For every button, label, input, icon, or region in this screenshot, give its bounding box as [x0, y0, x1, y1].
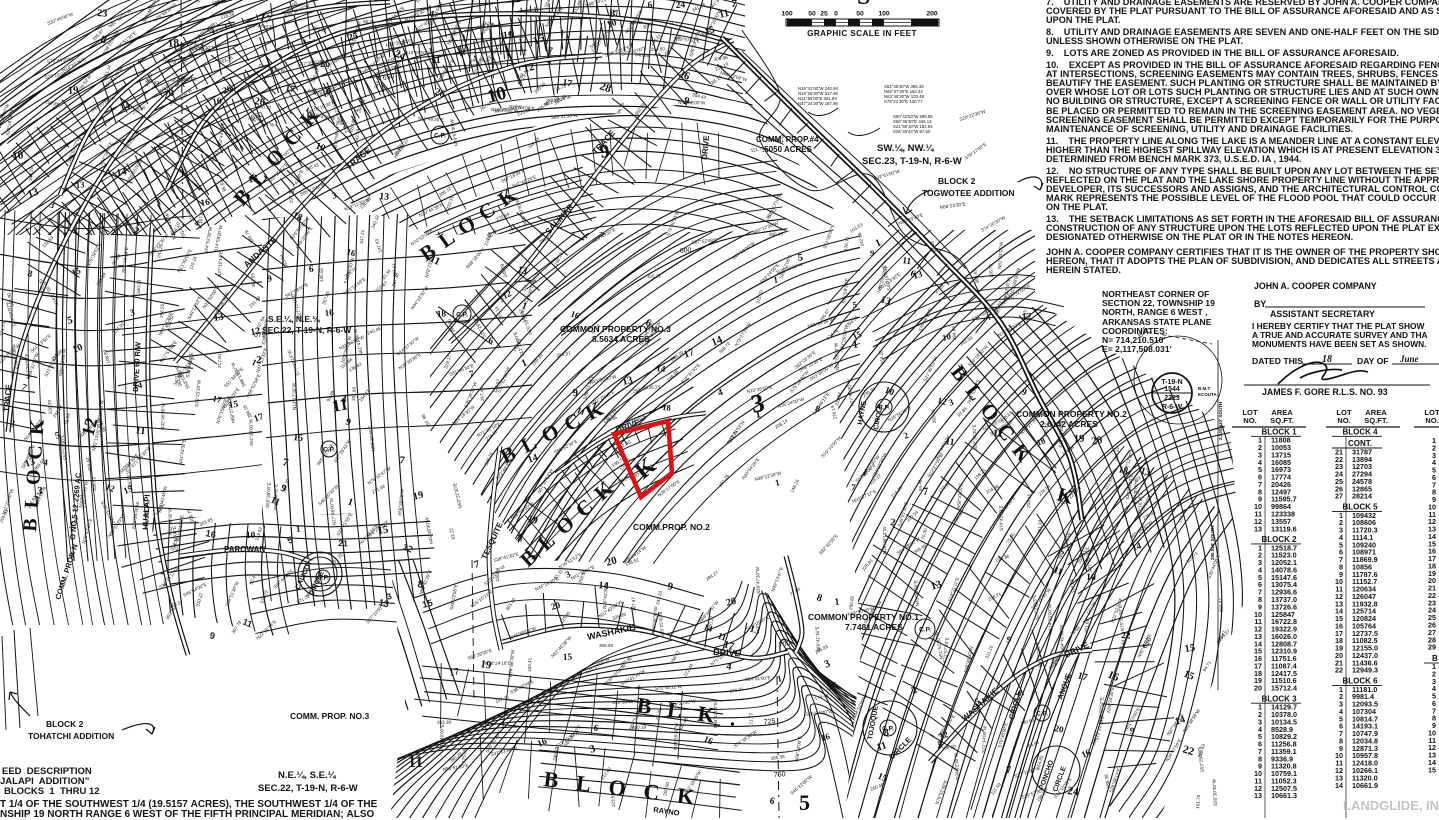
- svg-text:126.75: 126.75: [988, 263, 994, 278]
- svg-text:S.E.¼, N.E.¼: S.E.¼, N.E.¼: [268, 314, 320, 324]
- svg-text:PAROWAN: PAROWAN: [224, 545, 265, 554]
- svg-text:COMM. PROP.#4: COMM. PROP.#4: [756, 135, 819, 144]
- svg-text:17: 17: [561, 77, 573, 90]
- svg-text:COMM.PROP. NO.2: COMM.PROP. NO.2: [633, 522, 710, 532]
- svg-text:340.30: 340.30: [136, 279, 142, 294]
- svg-text:23: 23: [97, 8, 108, 20]
- svg-text:383.87: 383.87: [1218, 597, 1224, 612]
- svg-text:C.P.: C.P.: [1036, 711, 1048, 718]
- svg-text:12949.3: 12949.3: [1352, 666, 1378, 675]
- svg-text:C.P.: C.P.: [323, 447, 335, 454]
- svg-text:SQ.FT.: SQ.FT.: [1364, 416, 1388, 425]
- svg-text:C.P.: C.P.: [456, 312, 468, 319]
- svg-text:13: 13: [75, 179, 85, 190]
- svg-text:MONUMENTS HAVE BEEN SET AS: MONUMENTS HAVE BEEN SET AS SHOWN.: [1252, 339, 1427, 349]
- svg-text:254.50: 254.50: [651, 46, 666, 52]
- svg-text:725: 725: [764, 718, 776, 726]
- svg-text:50: 50: [856, 11, 864, 18]
- svg-text:208.92: 208.92: [91, 476, 97, 491]
- svg-text:8.5634 ACRES: 8.5634 ACRES: [592, 334, 650, 344]
- svg-text:BY: BY: [1254, 299, 1266, 309]
- svg-text:GRAPHIC SCALE IN FEET: GRAPHIC SCALE IN FEET: [807, 29, 917, 38]
- svg-text:SW.¼, NW.¼: SW.¼, NW.¼: [877, 143, 935, 154]
- svg-text:S41°49'00"E: S41°49'00"E: [439, 724, 445, 750]
- svg-text:13: 13: [1254, 791, 1262, 800]
- svg-text:June: June: [1399, 354, 1419, 364]
- svg-text:9: 9: [870, 248, 874, 258]
- svg-text:6: 6: [308, 264, 314, 275]
- svg-text:26: 26: [319, 58, 330, 70]
- svg-text:S39°47'30"W: S39°47'30"W: [755, 566, 761, 594]
- svg-text:NO.: NO.: [1337, 416, 1351, 425]
- svg-text:N32°40'00"W: N32°40'00"W: [160, 402, 166, 430]
- svg-text:284.22: 284.22: [1114, 446, 1120, 461]
- svg-text:TOGWOTEE ADDITION: TOGWOTEE ADDITION: [922, 188, 1015, 198]
- svg-text:12: 12: [1021, 311, 1032, 323]
- svg-text:ASSISTANT SECRETARY: ASSISTANT SECRETARY: [1270, 309, 1375, 319]
- svg-text:284.63: 284.63: [951, 325, 957, 340]
- svg-text:20: 20: [1254, 684, 1262, 693]
- svg-text:10: 10: [1086, 572, 1096, 583]
- svg-text:19: 19: [1074, 434, 1085, 445]
- svg-text:29: 29: [1428, 643, 1436, 652]
- svg-text:50: 50: [808, 11, 816, 18]
- svg-text:399.16: 399.16: [769, 231, 784, 237]
- svg-text:9: 9: [572, 388, 578, 399]
- svg-text:TOHATCHI ADDITION: TOHATCHI ADDITION: [28, 731, 114, 741]
- svg-text:C.P.: C.P.: [919, 627, 931, 634]
- svg-text:E= 2,117,508.031': E= 2,117,508.031': [1102, 344, 1172, 354]
- svg-text:10: 10: [246, 531, 256, 541]
- svg-text:9: 9: [1130, 727, 1136, 737]
- svg-text:B.M.T: B.M.T: [1198, 386, 1210, 391]
- svg-text:156.24: 156.24: [495, 567, 500, 582]
- svg-text:S26°49'44"W 87.60: S26°49'44"W 87.60: [893, 129, 931, 134]
- svg-text:135.55: 135.55: [319, 267, 324, 282]
- svg-text:2223: 2223: [1164, 395, 1180, 402]
- svg-text:C.P.: C.P.: [878, 405, 890, 412]
- svg-text:204.15: 204.15: [1026, 493, 1032, 508]
- svg-text:BLOCK 2: BLOCK 2: [46, 719, 84, 729]
- svg-text:331.80: 331.80: [351, 386, 357, 401]
- svg-text:.5050 ACRES: .5050 ACRES: [762, 145, 813, 154]
- svg-text:C.P.: C.P.: [882, 726, 894, 733]
- svg-text:16: 16: [200, 198, 211, 209]
- svg-text:27: 27: [1335, 492, 1343, 501]
- svg-text:14: 14: [656, 363, 666, 374]
- svg-text:T-19-N: T-19-N: [1161, 379, 1182, 386]
- svg-text:COMMON PROPERTY NO.3: COMMON PROPERTY NO.3: [560, 324, 671, 334]
- svg-text:11: 11: [902, 256, 912, 267]
- svg-text:200: 200: [926, 11, 938, 18]
- svg-text:290.510' SOUTH: 290.510' SOUTH: [1210, 526, 1215, 560]
- svg-text:18: 18: [437, 309, 447, 320]
- svg-text:S14°20'00"W: S14°20'00"W: [1047, 603, 1053, 631]
- svg-text:S: S: [857, 0, 870, 10]
- svg-text:SEC.22, T-19-N, R-6-W: SEC.22, T-19-N, R-6-W: [258, 783, 358, 794]
- svg-text:S74°41'00"E: S74°41'00"E: [999, 505, 1004, 531]
- svg-text:267.40: 267.40: [479, 386, 485, 401]
- svg-text:COMMON PROPERTY NO.1: COMMON PROPERTY NO.1: [808, 612, 919, 622]
- svg-text:C.P.: C.P.: [434, 133, 446, 140]
- svg-text:17: 17: [285, 83, 296, 95]
- svg-text:NO.: NO.: [1243, 416, 1257, 425]
- svg-text:14: 14: [1335, 781, 1343, 790]
- svg-text:SQ.FT.: SQ.FT.: [1270, 416, 1294, 425]
- svg-text:343.31: 343.31: [28, 166, 34, 181]
- svg-text:2.6142 ACRES: 2.6142 ACRES: [1040, 419, 1098, 429]
- svg-text:15: 15: [1428, 765, 1436, 774]
- svg-text:DATED THIS: DATED THIS: [1252, 356, 1303, 366]
- svg-text:10661.9: 10661.9: [1352, 781, 1378, 790]
- svg-text:5: 5: [799, 790, 810, 815]
- svg-text:7: 7: [1006, 765, 1011, 776]
- svg-text:10661.3: 10661.3: [1271, 791, 1297, 800]
- svg-text:183.41: 183.41: [527, 657, 533, 672]
- svg-text:15: 15: [377, 524, 389, 537]
- svg-text:13: 13: [1254, 524, 1262, 533]
- svg-text:ECOUTA: ECOUTA: [1198, 392, 1217, 397]
- svg-text:11: 11: [330, 394, 349, 416]
- svg-text:COMMON PROPERTY NO.2: COMMON PROPERTY NO.2: [1016, 409, 1127, 419]
- svg-text:750: 750: [774, 771, 786, 779]
- svg-text:11: 11: [408, 754, 423, 771]
- svg-text:DAY OF: DAY OF: [1357, 356, 1389, 366]
- svg-text:13: 13: [213, 312, 225, 324]
- svg-text:HUALAPI: HUALAPI: [141, 494, 152, 530]
- svg-text:N.E.¼, S.E.¼: N.E.¼, S.E.¼: [278, 770, 337, 781]
- svg-text:N74°59'30"W: N74°59'30"W: [673, 722, 679, 750]
- svg-text:SEC.23, T-19-N, R-6-W: SEC.23, T-19-N, R-6-W: [862, 156, 962, 167]
- svg-text:260.19: 260.19: [632, 725, 647, 730]
- svg-text:7.7481 ACRES: 7.7481 ACRES: [845, 622, 903, 632]
- svg-text:N56°45'30"W: N56°45'30"W: [491, 107, 519, 113]
- svg-text:256.55: 256.55: [159, 303, 165, 318]
- svg-text:JOHN A. COOPER COMPANY: JOHN A. COOPER COMPANY: [1254, 281, 1377, 291]
- svg-text:15: 15: [563, 653, 573, 663]
- svg-text:1544: 1544: [1164, 386, 1180, 393]
- svg-text:LANDGLIDE, INC: LANDGLIDE, INC: [1343, 798, 1439, 813]
- svg-text:N13°17'30"W: N13°17'30"W: [292, 382, 297, 410]
- svg-text:7: 7: [731, 0, 738, 10]
- svg-text:N29°46'13"W: N29°46'13"W: [882, 526, 887, 554]
- svg-text:2,340.510' SOUTH: 2,340.510' SOUTH: [1218, 402, 1223, 440]
- svg-text:BLOCK 4: BLOCK 4: [1342, 428, 1378, 437]
- svg-text:100: 100: [878, 11, 890, 18]
- svg-text:356.93: 356.93: [599, 643, 613, 648]
- svg-text:19: 19: [502, 29, 514, 42]
- svg-text:14: 14: [116, 166, 128, 179]
- svg-text:13: 13: [379, 191, 390, 203]
- svg-text:28214: 28214: [1352, 492, 1372, 501]
- svg-text:R-6-W: R-6-W: [1162, 404, 1183, 411]
- svg-text:66.25: 66.25: [363, 19, 375, 25]
- svg-text:16: 16: [324, 307, 334, 318]
- svg-text:21: 21: [338, 538, 348, 549]
- svg-text:105.12: 105.12: [647, 273, 662, 279]
- svg-text:15: 15: [1184, 643, 1196, 655]
- svg-text:BLOCK 2: BLOCK 2: [938, 176, 976, 186]
- svg-text:25: 25: [820, 11, 828, 18]
- svg-text:22: 22: [1335, 666, 1343, 675]
- svg-text:N52°50'30"W: N52°50'30"W: [168, 507, 173, 535]
- svg-text:302.11: 302.11: [629, 20, 643, 25]
- svg-text:S79°21'30"E 130.77: S79°21'30"E 130.77: [884, 99, 923, 104]
- svg-text:19: 19: [67, 84, 79, 97]
- svg-text:675: 675: [254, 332, 266, 339]
- svg-text:362.65: 362.65: [250, 272, 256, 287]
- svg-text:JAMES F. GORE R.L.S. NO.: JAMES F. GORE R.L.S. NO. 93: [1262, 387, 1388, 397]
- svg-text:0: 0: [834, 11, 838, 18]
- svg-text:11: 11: [945, 436, 956, 448]
- svg-text:24: 24: [1067, 785, 1080, 798]
- svg-text:281.18: 281.18: [1037, 519, 1043, 534]
- svg-text:NO.: NO.: [1425, 416, 1439, 425]
- svg-text:15: 15: [228, 399, 239, 411]
- svg-text:C.P.: C.P.: [317, 575, 329, 582]
- svg-text:COMM. PROP. NO.3: COMM. PROP. NO.3: [290, 711, 369, 721]
- svg-text:S10°59'50"W: S10°59'50"W: [405, 50, 433, 55]
- svg-text:138.13: 138.13: [646, 384, 661, 390]
- svg-text:11: 11: [431, 55, 441, 66]
- svg-text:NORTH, RANGE 6 WEST ,: NORTH, RANGE 6 WEST ,: [1102, 307, 1208, 317]
- svg-text:600: 600: [680, 247, 692, 255]
- svg-text:100: 100: [781, 11, 793, 18]
- svg-text:14: 14: [598, 580, 610, 592]
- svg-text:217.50: 217.50: [217, 353, 222, 368]
- svg-text:SEC.22, T-19-N, R-6-W: SEC.22, T-19-N, R-6-W: [262, 325, 352, 335]
- svg-text:N47°24'30"W 187.96: N47°24'30"W 187.96: [798, 101, 839, 106]
- svg-text:DRIVE: DRIVE: [713, 647, 741, 658]
- svg-text:15: 15: [293, 432, 304, 444]
- svg-text:22: 22: [1121, 631, 1131, 641]
- svg-text:18: 18: [167, 37, 180, 50]
- svg-text:11: 11: [135, 424, 147, 437]
- svg-text:13119.6: 13119.6: [1271, 524, 1297, 533]
- svg-text:24: 24: [676, 0, 686, 11]
- svg-text:18: 18: [662, 402, 672, 413]
- svg-text:S51°33'00"W: S51°33'00"W: [249, 418, 254, 446]
- svg-text:15712.4: 15712.4: [1271, 684, 1297, 693]
- svg-text:351.60: 351.60: [1084, 618, 1090, 633]
